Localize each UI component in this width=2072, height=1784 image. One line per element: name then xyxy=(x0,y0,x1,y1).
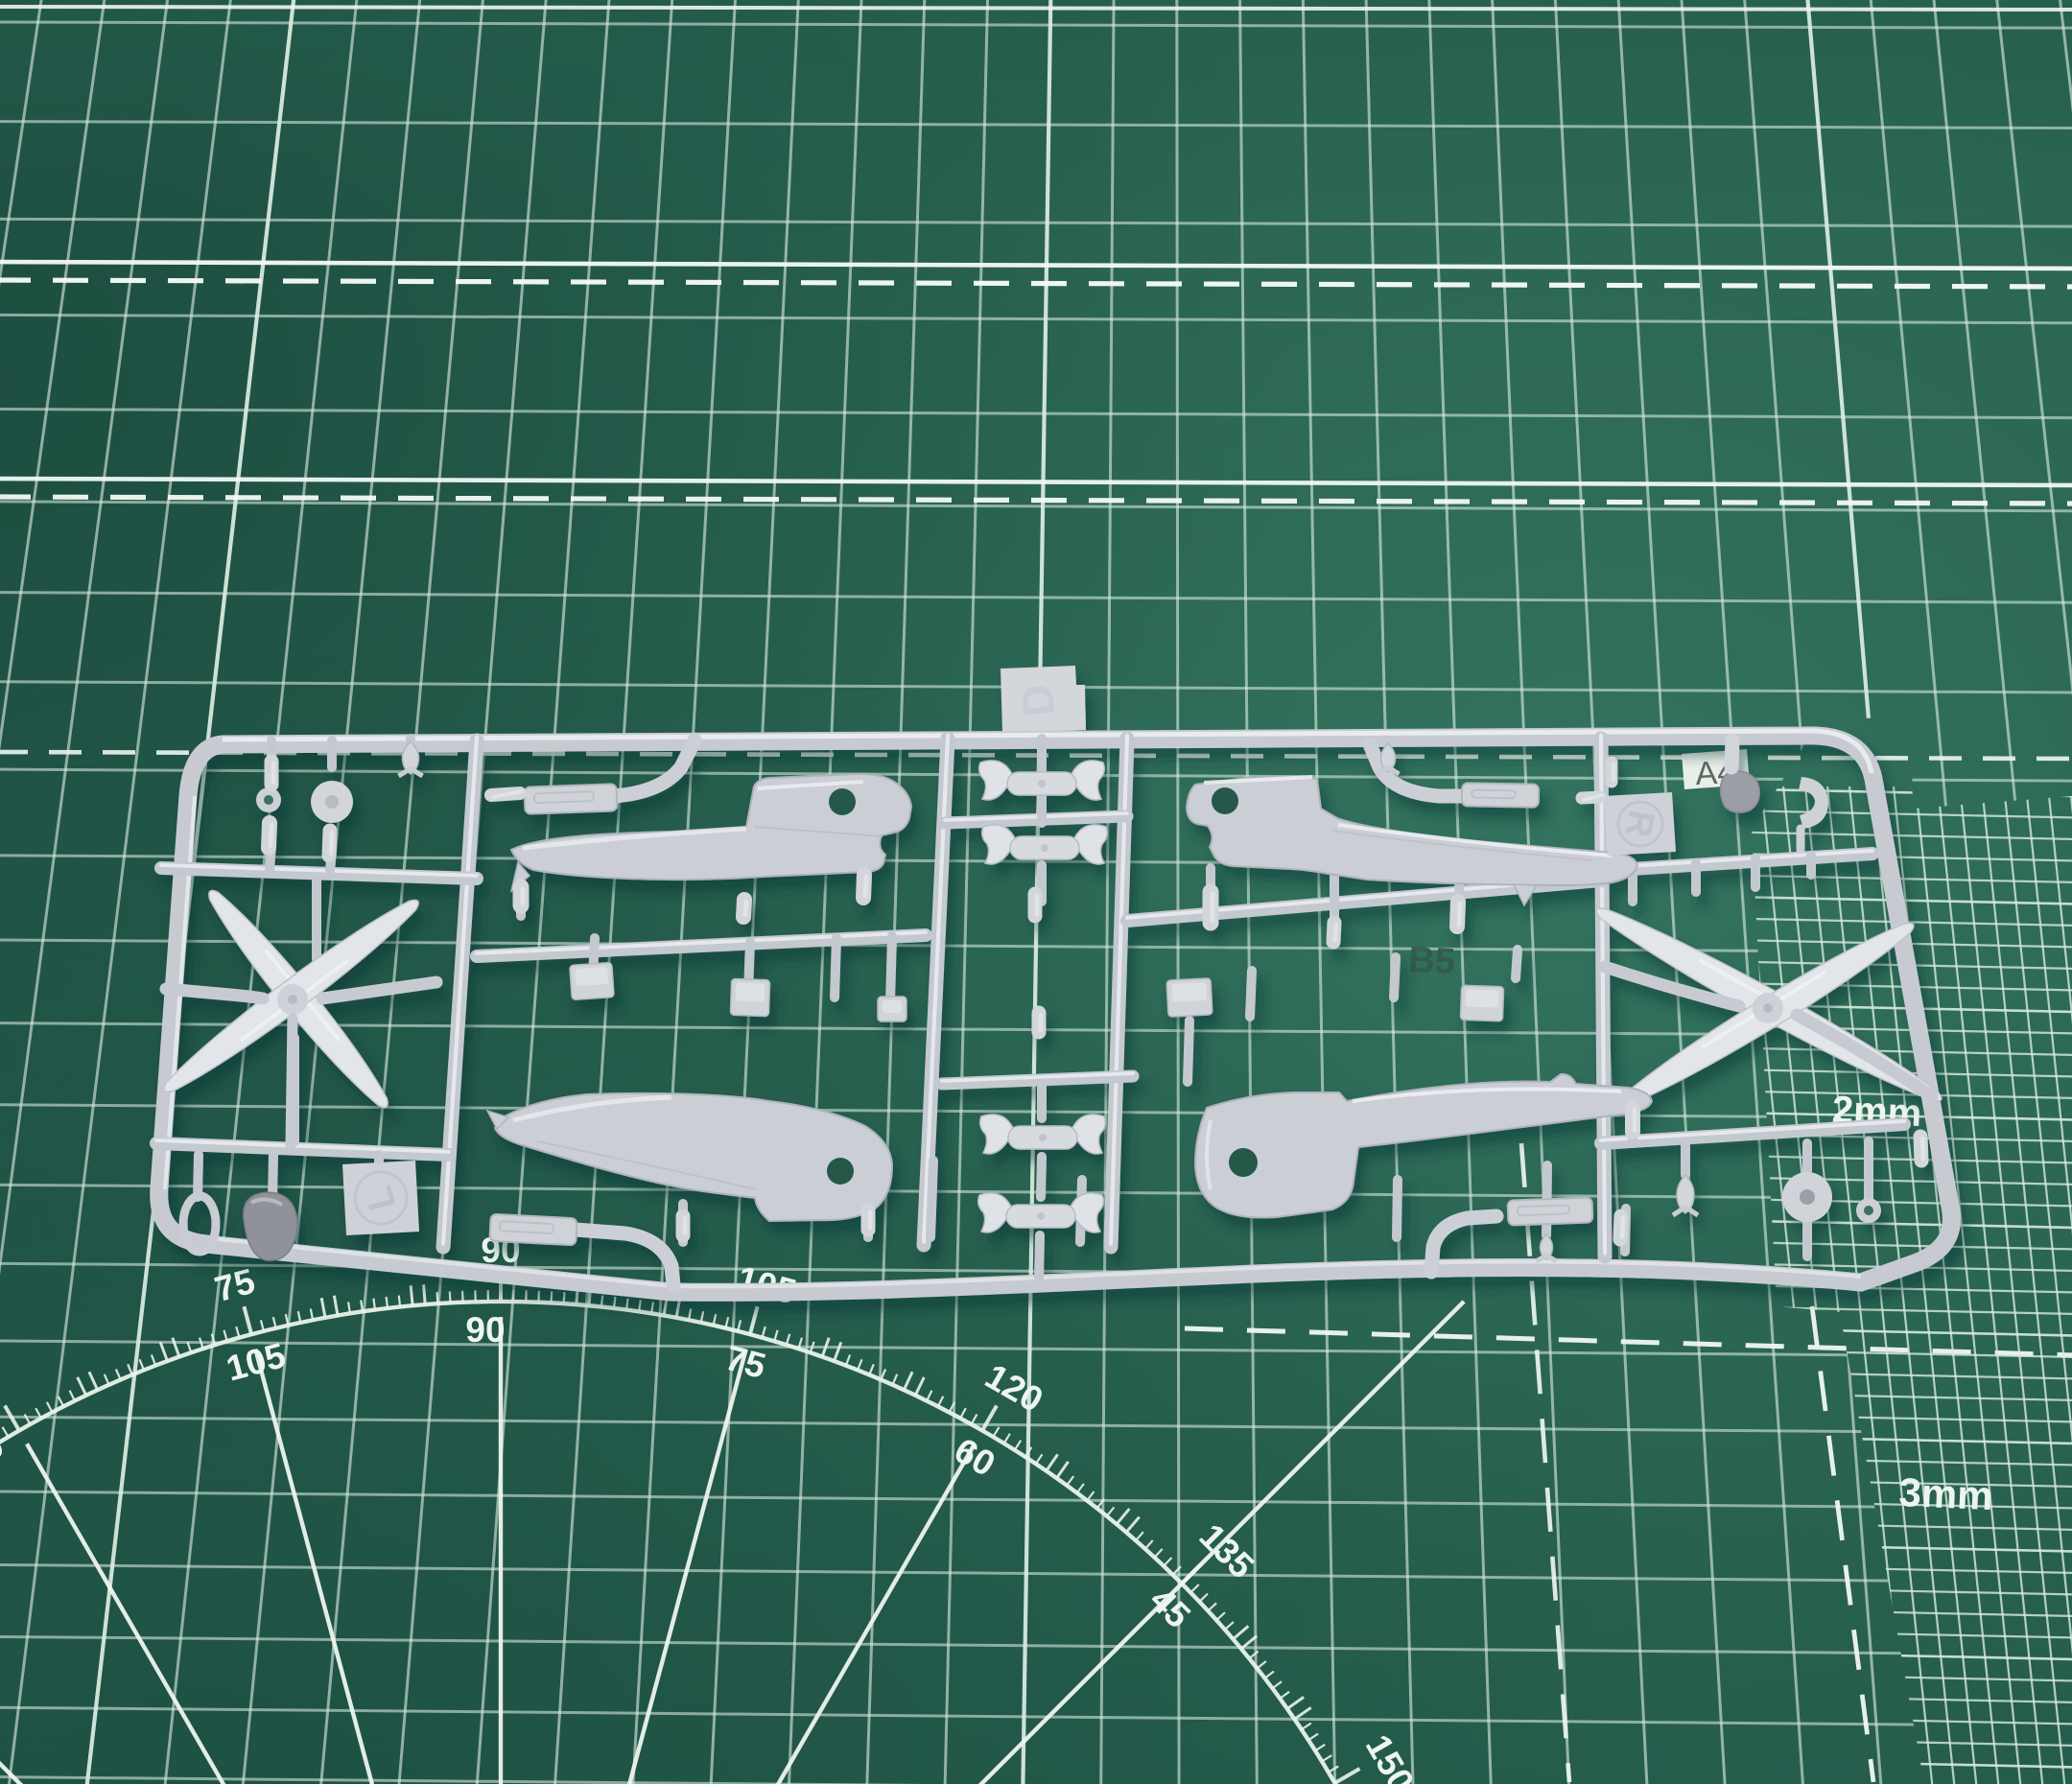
svg-text:D: D xyxy=(1011,682,1064,718)
svg-text:90: 90 xyxy=(465,1310,505,1350)
svg-text:B5: B5 xyxy=(1407,940,1456,982)
svg-text:3mm: 3mm xyxy=(1898,1469,1994,1518)
